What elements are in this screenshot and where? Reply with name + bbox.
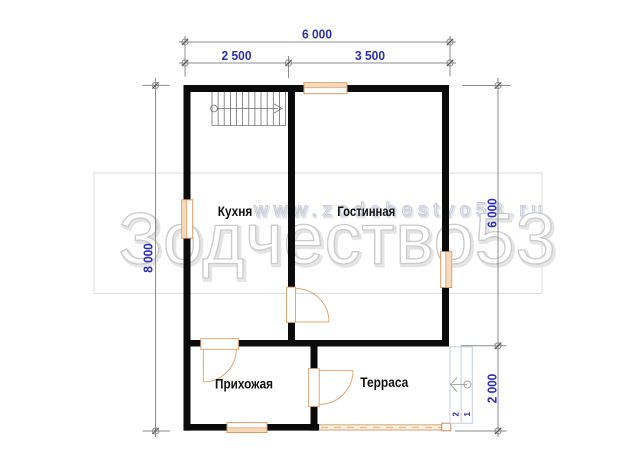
svg-text:2 000: 2 000	[485, 374, 500, 404]
svg-text:8 000: 8 000	[140, 243, 155, 273]
svg-text:1: 1	[463, 412, 472, 417]
svg-text:Гостинная: Гостинная	[337, 204, 395, 219]
svg-text:2 500: 2 500	[222, 48, 252, 63]
svg-text:Терраса: Терраса	[360, 375, 408, 390]
svg-text:2: 2	[452, 412, 461, 417]
svg-text:3 500: 3 500	[355, 48, 385, 63]
svg-text:6 000: 6 000	[485, 198, 500, 228]
svg-text:6 000: 6 000	[302, 27, 332, 42]
svg-text:Кухня: Кухня	[218, 204, 253, 219]
svg-text:Прихожая: Прихожая	[215, 377, 273, 392]
